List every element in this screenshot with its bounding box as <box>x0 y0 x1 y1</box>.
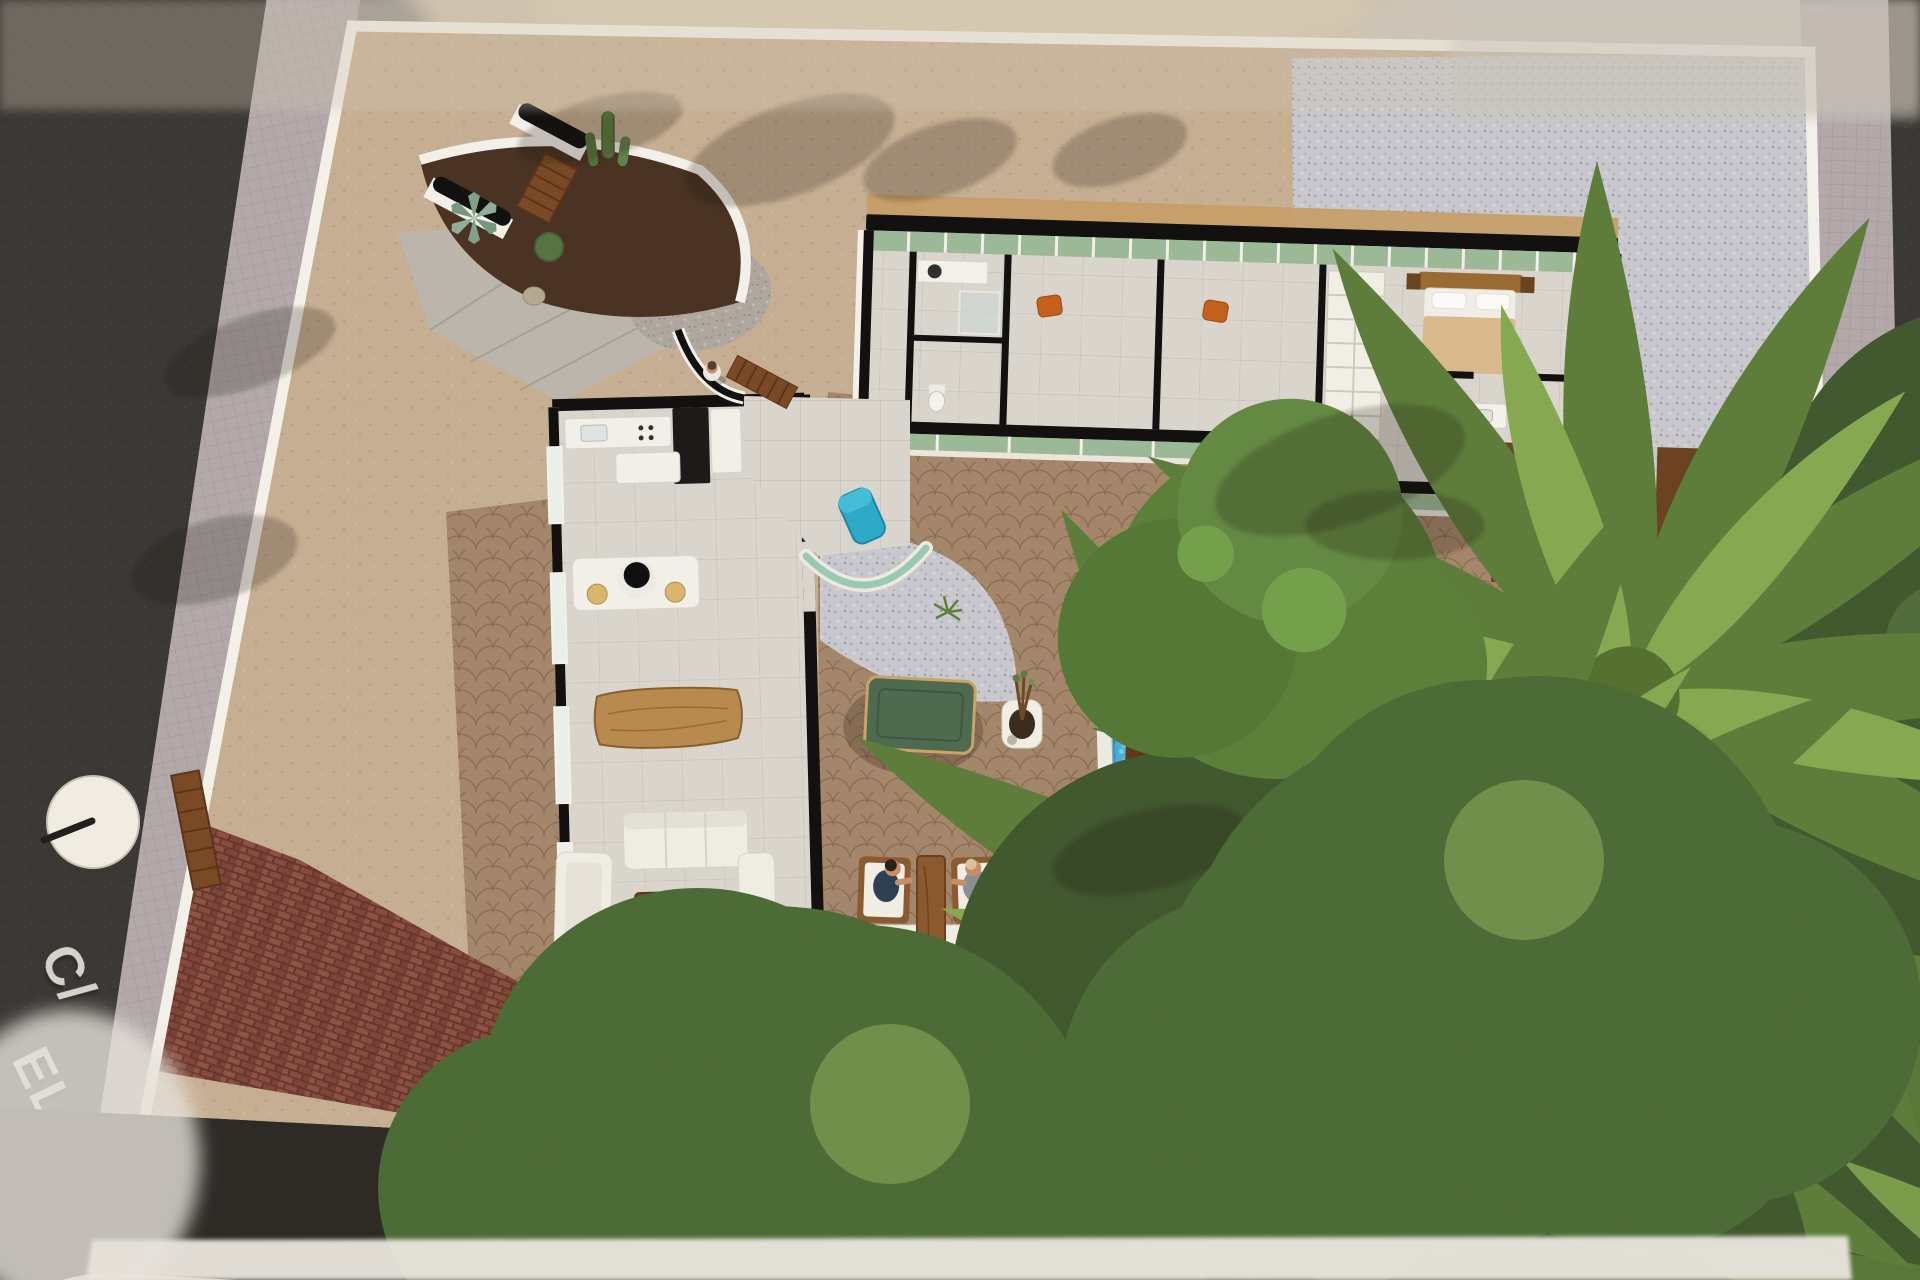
render-canvas: C/ EL A <box>0 0 1920 1280</box>
fridge <box>710 408 742 473</box>
kitchen-sink <box>581 425 607 442</box>
decor-stone <box>523 287 545 305</box>
desk-chair <box>1202 299 1229 323</box>
kitchen-island <box>616 452 681 484</box>
desk-chair <box>1036 294 1063 317</box>
south-wall-band <box>86 1236 1852 1280</box>
round-cactus <box>535 233 563 261</box>
lounge-chair-left <box>857 856 914 924</box>
toilet <box>928 384 945 411</box>
bar-stool <box>665 582 686 603</box>
sofa <box>623 810 748 869</box>
render-stage: C/ EL A <box>0 0 1920 1280</box>
green-table-top <box>864 676 976 754</box>
bar-stool <box>587 584 608 605</box>
